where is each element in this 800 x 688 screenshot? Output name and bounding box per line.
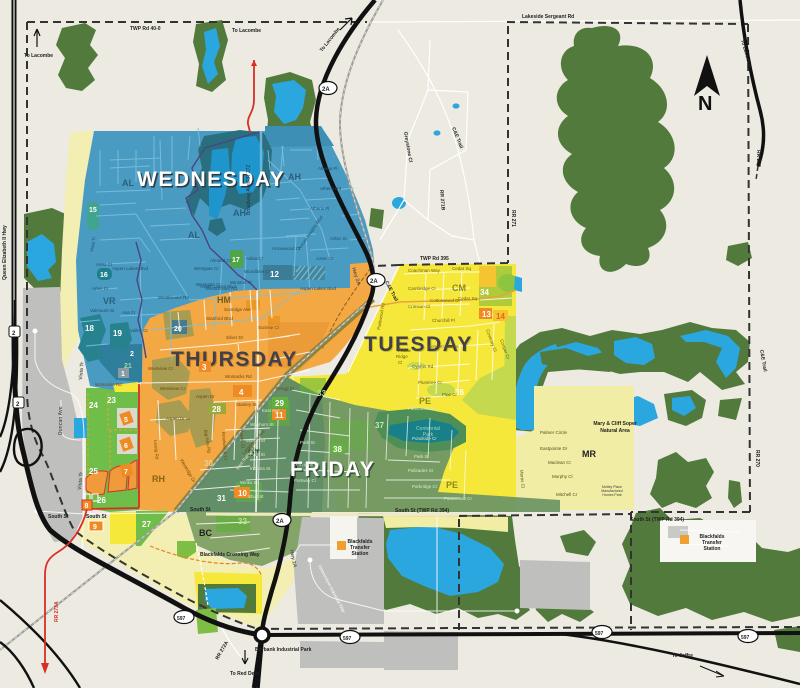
- svg-text:Almond Cr: Almond Cr: [210, 258, 232, 263]
- svg-text:RR 270: RR 270: [754, 450, 760, 467]
- svg-text:Arlen Cl: Arlen Cl: [92, 286, 108, 291]
- svg-text:Eastpointe Dr: Eastpointe Dr: [540, 446, 568, 451]
- svg-text:AL: AL: [188, 230, 200, 240]
- svg-text:31: 31: [217, 494, 226, 503]
- svg-text:AH: AH: [288, 172, 301, 182]
- svg-text:37: 37: [375, 421, 384, 430]
- svg-text:2: 2: [130, 351, 134, 358]
- svg-text:32: 32: [238, 517, 247, 526]
- svg-text:Westview Cr: Westview Cr: [148, 366, 174, 371]
- svg-text:Stanley St: Stanley St: [236, 402, 257, 407]
- svg-text:3: 3: [202, 363, 207, 372]
- svg-text:28: 28: [212, 405, 221, 414]
- svg-text:To Lacombe: To Lacombe: [24, 53, 53, 59]
- svg-text:Pondside Cr: Pondside Cr: [412, 436, 437, 441]
- svg-text:Aztec St: Aztec St: [330, 236, 348, 241]
- svg-text:4: 4: [239, 388, 244, 397]
- svg-text:Westbrooke Rd: Westbrooke Rd: [206, 286, 237, 291]
- svg-text:Aspen Dr: Aspen Dr: [196, 394, 215, 399]
- svg-text:20: 20: [174, 326, 182, 333]
- svg-text:Station: Station: [704, 546, 721, 552]
- svg-text:Portway Cl: Portway Cl: [294, 478, 316, 483]
- svg-text:RH: RH: [152, 474, 165, 484]
- svg-text:30: 30: [204, 459, 213, 468]
- svg-text:Pine Cr: Pine Cr: [442, 392, 458, 397]
- svg-text:Natural Area: Natural Area: [600, 428, 630, 434]
- svg-text:PE: PE: [446, 480, 458, 490]
- svg-text:Crimson Cl: Crimson Cl: [408, 304, 430, 309]
- svg-text:Panorama Dr: Panorama Dr: [408, 406, 435, 411]
- svg-text:597: 597: [741, 635, 750, 641]
- svg-text:Sunrise Cl: Sunrise Cl: [258, 325, 279, 330]
- svg-text:CM: CM: [452, 283, 466, 293]
- svg-text:Maclean Cr: Maclean Cr: [548, 460, 572, 465]
- svg-text:Ponderosa Ave: Ponderosa Ave: [428, 344, 459, 349]
- svg-text:Palisades St: Palisades St: [408, 468, 434, 473]
- svg-text:Ava Cr: Ava Cr: [122, 310, 136, 315]
- svg-text:Trout St: Trout St: [222, 512, 239, 517]
- svg-text:TWP Rd 40-0: TWP Rd 40-0: [130, 26, 161, 32]
- svg-text:Station: Station: [352, 551, 369, 557]
- svg-text:Aspen Lakes Blvd: Aspen Lakes Blvd: [300, 286, 337, 291]
- svg-text:Plumtree Cr: Plumtree Cr: [418, 380, 443, 385]
- svg-text:Valley Cr: Valley Cr: [130, 328, 148, 333]
- svg-text:Coachman Way: Coachman Way: [408, 268, 441, 273]
- svg-text:Pinnacle Cl: Pinnacle Cl: [296, 462, 319, 467]
- svg-text:18: 18: [85, 324, 94, 333]
- svg-text:South St (TWP Rd 394): South St (TWP Rd 394): [630, 517, 684, 523]
- svg-text:17: 17: [232, 257, 240, 264]
- svg-text:Sunridge Ave: Sunridge Ave: [224, 307, 251, 312]
- svg-text:Anna Cl: Anna Cl: [96, 262, 112, 267]
- svg-text:BC: BC: [199, 528, 212, 538]
- svg-text:Winston Pl: Winston Pl: [230, 280, 252, 285]
- svg-text:N: N: [698, 93, 712, 115]
- svg-text:TWP Rd 395: TWP Rd 395: [420, 256, 449, 262]
- svg-text:1: 1: [121, 371, 125, 378]
- svg-text:Cyprus Rd: Cyprus Rd: [412, 364, 434, 369]
- svg-text:Mary & Cliff Soper: Mary & Cliff Soper: [593, 421, 636, 427]
- svg-text:Athena Pl: Athena Pl: [318, 166, 338, 171]
- svg-text:Park St: Park St: [414, 454, 430, 459]
- svg-text:Waghorn St: Waghorn St: [250, 422, 274, 427]
- svg-text:South St: South St: [190, 507, 211, 513]
- svg-text:Westview Cr: Westview Cr: [160, 386, 186, 391]
- svg-text:Cottonwood Dr: Cottonwood Dr: [430, 298, 461, 303]
- svg-text:Homes Park: Homes Park: [602, 493, 622, 497]
- svg-text:2A: 2A: [370, 279, 378, 285]
- svg-text:HM: HM: [217, 295, 231, 305]
- svg-text:WEDNESDAY: WEDNESDAY: [137, 168, 285, 191]
- svg-text:13: 13: [482, 310, 491, 319]
- svg-text:Palmer Circle: Palmer Circle: [540, 430, 568, 435]
- svg-text:19: 19: [113, 329, 122, 338]
- svg-text:Cedar Sq: Cedar Sq: [458, 296, 478, 301]
- svg-text:38: 38: [333, 445, 342, 454]
- svg-text:Parkridge Cr: Parkridge Cr: [412, 484, 438, 489]
- svg-text:AH: AH: [233, 208, 246, 218]
- svg-text:THURSDAY: THURSDAY: [171, 348, 298, 371]
- svg-text:Gregg St: Gregg St: [276, 386, 295, 391]
- svg-text:Stanford Blvd: Stanford Blvd: [206, 316, 234, 321]
- svg-text:Cl: Cl: [398, 360, 402, 365]
- svg-text:25: 25: [89, 467, 98, 476]
- svg-text:RR 273A: RR 273A: [54, 601, 60, 622]
- svg-text:14: 14: [496, 312, 505, 321]
- svg-text:Burbank Industrial Park: Burbank Industrial Park: [255, 647, 312, 653]
- svg-text:2A: 2A: [276, 519, 284, 525]
- svg-text:Aspen Dr W: Aspen Dr W: [166, 416, 191, 421]
- svg-text:South St: South St: [48, 514, 69, 520]
- svg-text:8: 8: [85, 503, 89, 510]
- svg-text:Wilson St: Wilson St: [246, 438, 266, 443]
- svg-text:Blackfalds Crossing Way: Blackfalds Crossing Way: [200, 552, 260, 558]
- svg-text:Shull St: Shull St: [248, 494, 264, 499]
- svg-text:Indiana St: Indiana St: [250, 466, 271, 471]
- svg-text:Arrowwood Cl: Arrowwood Cl: [272, 246, 300, 251]
- svg-text:597: 597: [595, 631, 604, 637]
- svg-text:Aztec Cr: Aztec Cr: [316, 256, 334, 261]
- svg-text:MR: MR: [582, 449, 596, 459]
- svg-text:29: 29: [275, 399, 284, 408]
- svg-text:VR: VR: [103, 296, 116, 306]
- svg-text:East Ave: East Ave: [262, 408, 280, 413]
- svg-text:Woodbine Cl: Woodbine Cl: [244, 269, 270, 274]
- svg-text:Cambridge Cl: Cambridge Cl: [408, 286, 436, 291]
- svg-text:5: 5: [124, 417, 128, 424]
- svg-text:9: 9: [93, 524, 97, 531]
- svg-text:Murphy Cl: Murphy Cl: [552, 474, 573, 479]
- svg-text:RR 271: RR 271: [510, 210, 516, 227]
- svg-text:Westbrooke Rd: Westbrooke Rd: [158, 295, 189, 300]
- svg-text:34: 34: [480, 288, 489, 297]
- svg-text:Queen Elizabeth II Hwy: Queen Elizabeth II Hwy: [2, 225, 8, 280]
- svg-text:Winks St: Winks St: [240, 480, 259, 485]
- svg-text:Adina Cl: Adina Cl: [246, 256, 263, 261]
- svg-text:Mitchell Cr: Mitchell Cr: [556, 492, 578, 497]
- svg-text:Aspen Lakes Blvd: Aspen Lakes Blvd: [112, 266, 149, 271]
- svg-text:6: 6: [124, 443, 128, 450]
- svg-text:Womacks Rd: Womacks Rd: [225, 374, 252, 379]
- svg-text:Broadway Ave/RR 272: Broadway Ave/RR 272: [246, 165, 252, 215]
- svg-text:Prairie: Prairie: [398, 348, 412, 353]
- svg-text:Park St: Park St: [300, 440, 316, 445]
- svg-text:24: 24: [89, 401, 98, 410]
- svg-text:33: 33: [317, 389, 326, 398]
- svg-text:Cedar Sq: Cedar Sq: [452, 266, 472, 271]
- svg-text:To Lacombe: To Lacombe: [232, 28, 261, 34]
- svg-text:South St (TWP Rd 394): South St (TWP Rd 394): [395, 508, 449, 514]
- svg-text:South St: South St: [86, 514, 107, 520]
- svg-text:12: 12: [270, 270, 279, 279]
- svg-text:RR 270: RR 270: [755, 150, 761, 167]
- svg-text:Womacks Rd: Womacks Rd: [95, 382, 122, 387]
- svg-text:Lakeside Sergeant Rd: Lakeside Sergeant Rd: [522, 14, 574, 20]
- svg-text:Athens Rd: Athens Rd: [320, 186, 342, 191]
- svg-text:597: 597: [177, 616, 186, 622]
- svg-text:Churchill Pl: Churchill Pl: [432, 318, 455, 323]
- svg-text:10: 10: [238, 489, 247, 498]
- svg-text:Duncan Ave: Duncan Ave: [58, 406, 64, 435]
- svg-text:To Red Deer: To Red Deer: [230, 671, 259, 677]
- svg-text:Paramount Cr: Paramount Cr: [444, 496, 473, 501]
- svg-text:Ridge: Ridge: [396, 354, 408, 359]
- svg-text:27: 27: [142, 520, 151, 529]
- svg-text:Valmount St: Valmount St: [90, 308, 115, 313]
- svg-text:AL: AL: [122, 178, 134, 188]
- svg-text:2A: 2A: [322, 87, 330, 93]
- svg-text:Westgate Cr: Westgate Cr: [194, 266, 219, 271]
- svg-text:7: 7: [124, 469, 128, 476]
- svg-text:To Joffre: To Joffre: [672, 653, 693, 659]
- svg-text:Silver Dr: Silver Dr: [226, 335, 244, 340]
- svg-text:PE: PE: [419, 396, 431, 406]
- svg-text:597: 597: [343, 636, 352, 642]
- svg-text:Athens Pl: Athens Pl: [310, 206, 329, 211]
- svg-text:16: 16: [100, 272, 108, 279]
- svg-text:15: 15: [89, 207, 97, 214]
